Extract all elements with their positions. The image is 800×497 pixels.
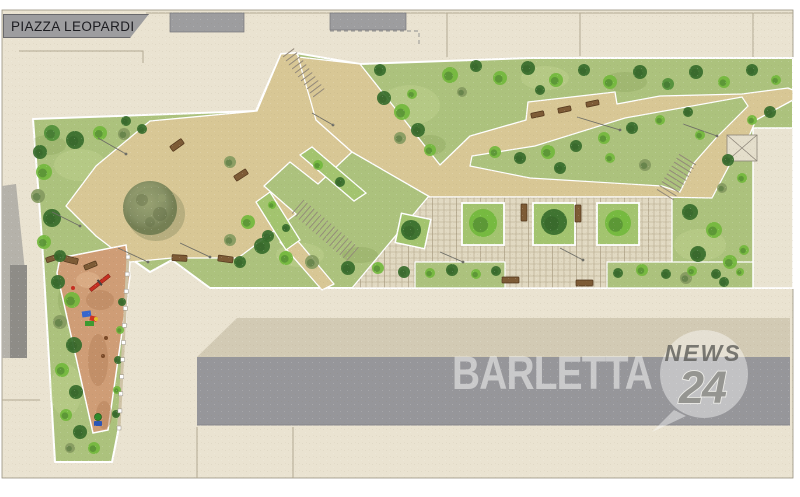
site-plan-svg: BARLETTA NEWS 24 [0, 0, 800, 497]
watermark-number-label: 24 [678, 362, 727, 413]
site-plan-page: BARLETTA NEWS 24 PIAZZA LEOPARDI [0, 0, 800, 497]
paper-grain [2, 10, 793, 478]
title-block: PIAZZA LEOPARDI [3, 14, 149, 38]
plan-title: PIAZZA LEOPARDI [11, 19, 135, 34]
watermark-brand: BARLETTA [452, 346, 652, 399]
